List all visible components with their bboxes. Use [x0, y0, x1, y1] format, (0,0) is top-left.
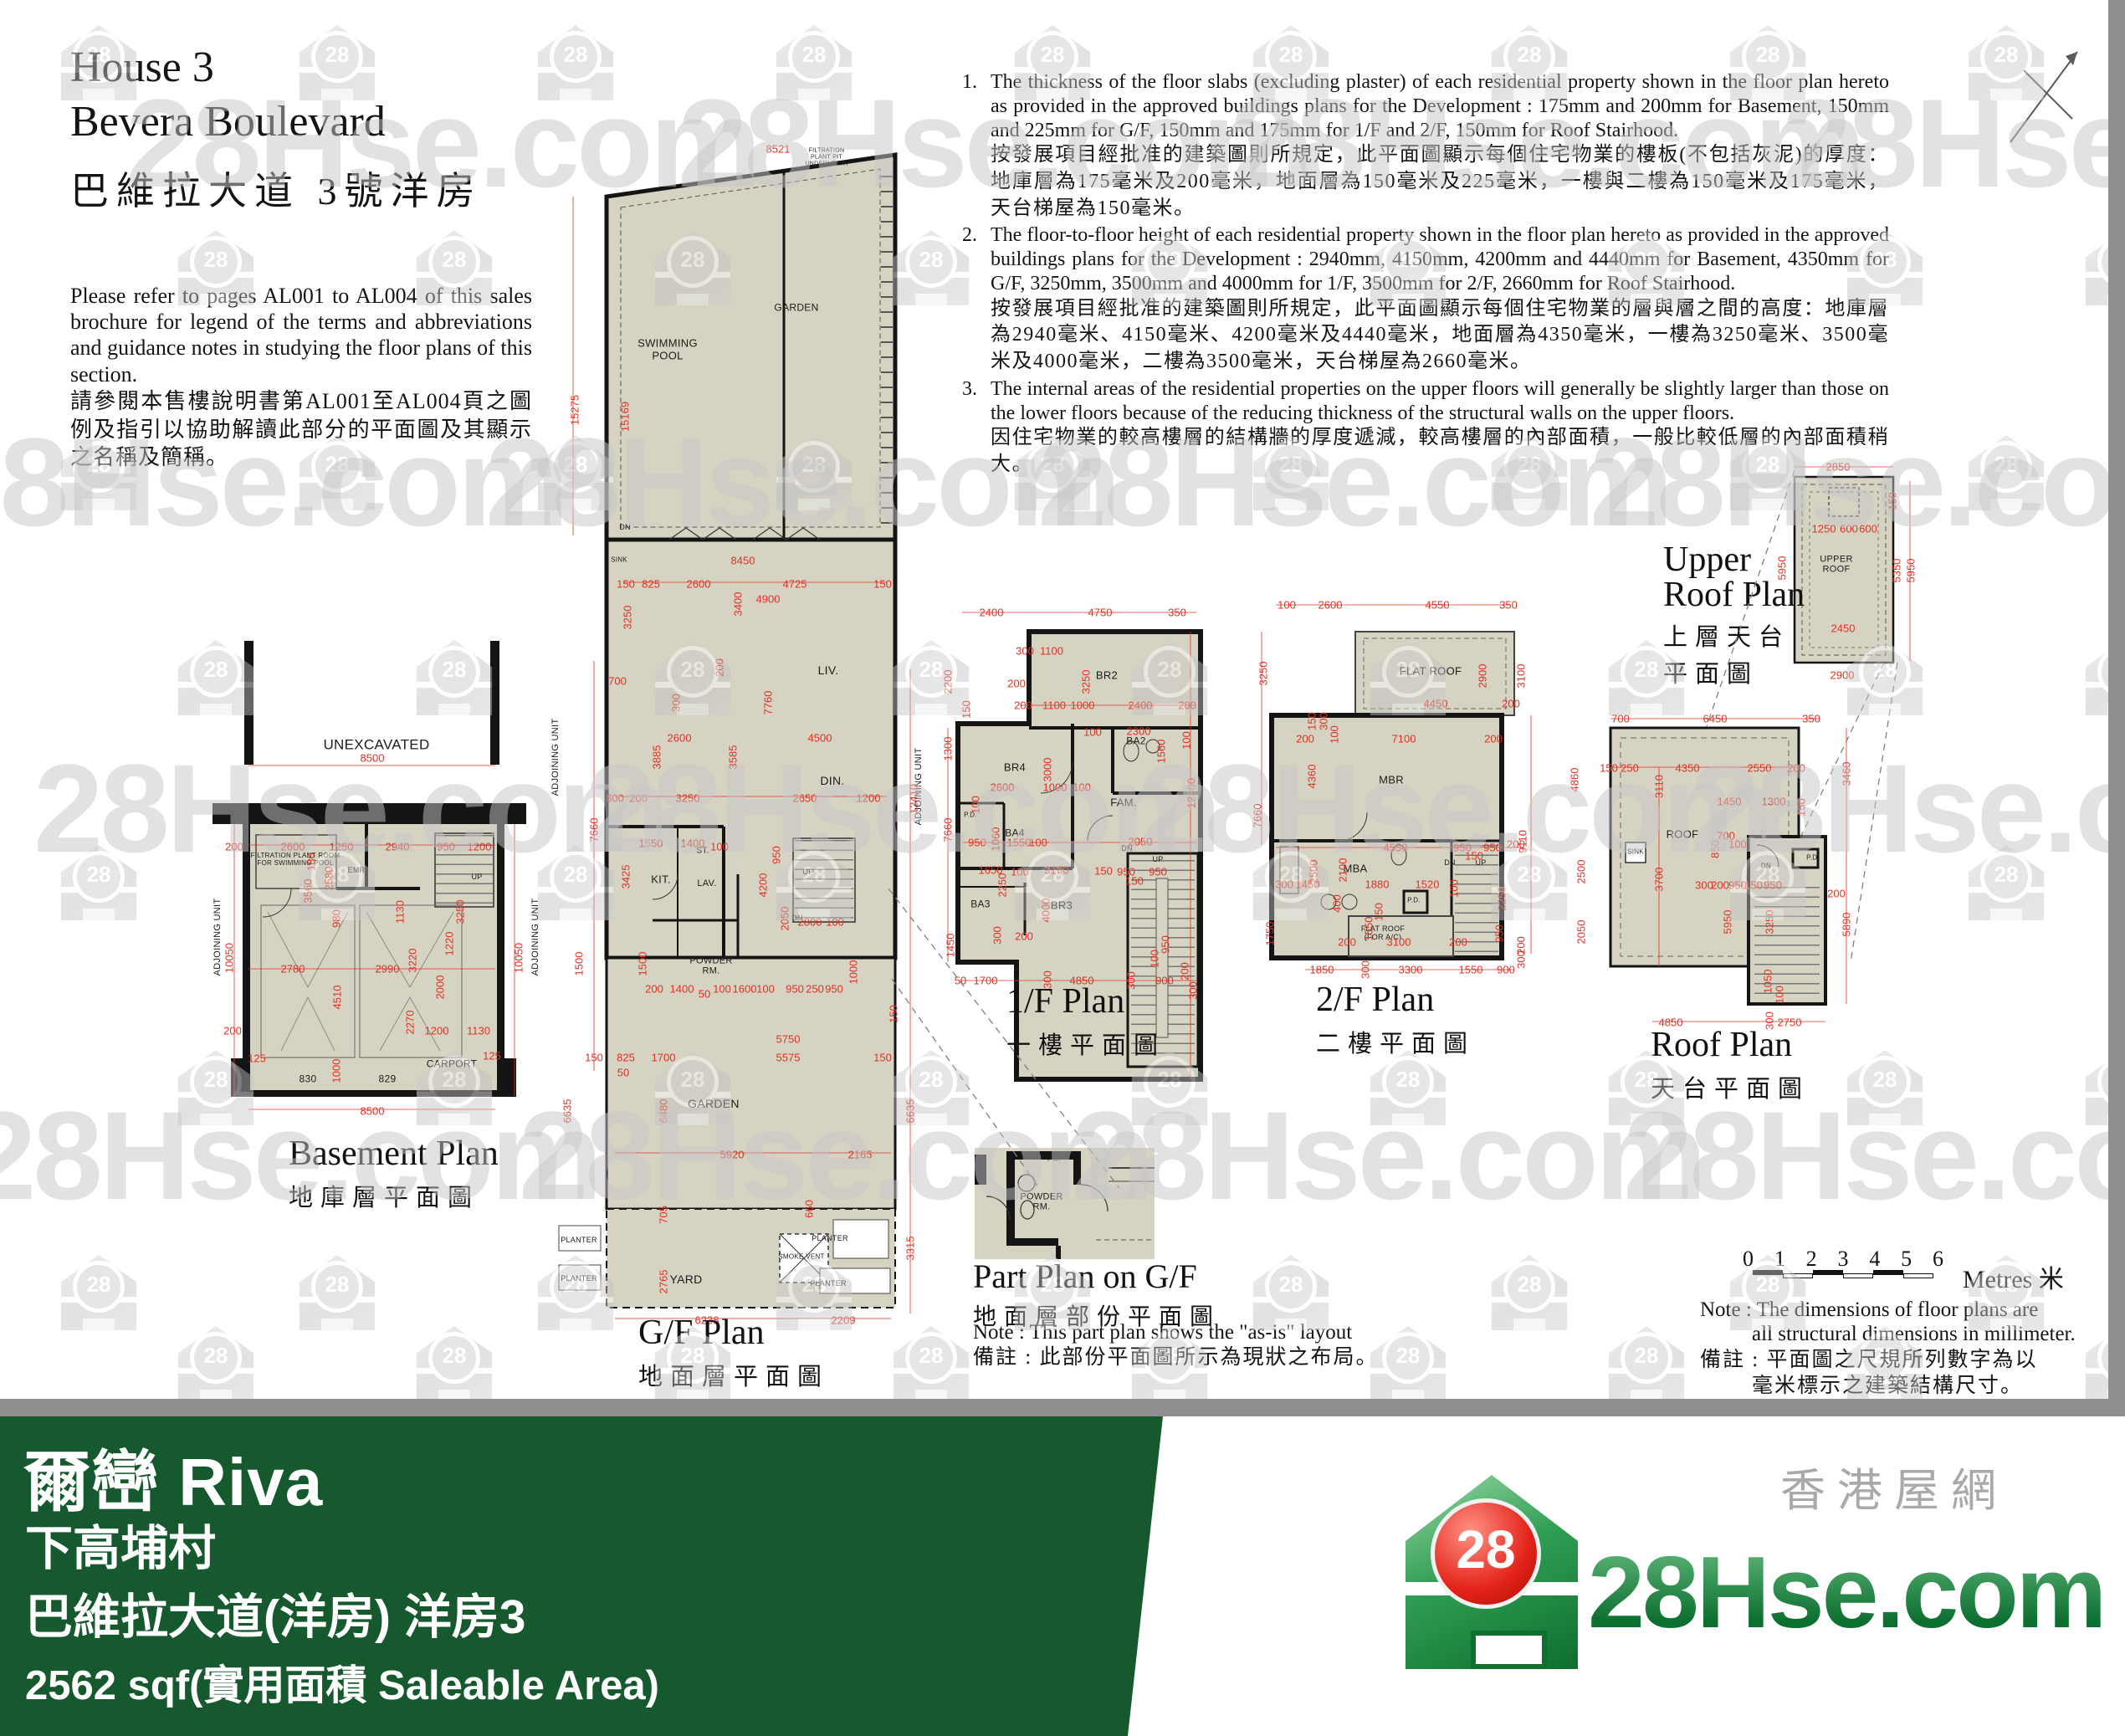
page-title-line2: Bevera Boulevard [70, 95, 386, 149]
watermark-badge: 28 [190, 1332, 242, 1384]
scalebar-ticks: 0123456 [1743, 1247, 1943, 1272]
scalebar-segment [1753, 1270, 1783, 1275]
property-banner: 爾巒 Riva 下高埔村 巴維拉大道(洋房) 洋房3 2562 sqf(實用面積… [0, 1416, 1163, 1736]
watermark-house-icon: 28 [774, 25, 854, 100]
dimension-note-zh2: 毫米標示之建築結構尺寸。 [1752, 1373, 2076, 1399]
watermark-house-body [297, 1255, 377, 1330]
watermark-house-icon: 28 [1845, 1050, 1925, 1125]
scalebar-tick: 2 [1806, 1247, 1817, 1272]
watermark-house-body [1966, 435, 2046, 510]
watermark-house-icon: 28 [176, 1326, 256, 1401]
upper-roof-plan-title: Upper Roof Plan 上層天台 平面圖 [1663, 542, 1805, 689]
roof-plan: ROOFSINKDNP.D. 7006450350150250435025502… [1602, 715, 1878, 1037]
intro-paragraph-zh: 請參閱本售樓說明書第AL001至AL004頁之圖例及指引以協助解讀此部分的平面圖… [70, 387, 532, 472]
watermark-house-body [59, 1255, 139, 1330]
watermark-badge: 28 [788, 31, 840, 83]
watermark-house-body [1966, 845, 2046, 920]
plan-title-zh-line2: 平面圖 [1663, 654, 1805, 689]
watermark-badge: 28 [1621, 1332, 1672, 1384]
second-floor-plan-title: 2/F Plan 二樓平面圖 [1316, 982, 1475, 1059]
part-plan-note-en: Note : This part plan shows the "as-is" … [973, 1320, 1352, 1345]
right-gray-strip [2108, 0, 2125, 1416]
watermark-badge: 28 [1980, 851, 2032, 903]
watermark-badge: 28 [550, 31, 602, 83]
watermark-house-icon: 28 [1966, 845, 2046, 920]
note-body: The thickness of the floor slabs (exclud… [991, 70, 1889, 222]
note-text-zh: 按發展項目經批准的建築圖則所規定，此平面圖顯示每個住宅物業的樓板(不包括灰泥)的… [991, 142, 1889, 222]
watermark-badge: 28 [428, 1332, 480, 1384]
watermark-badge: 28 [73, 851, 125, 903]
watermark-house-icon: 28 [414, 1326, 494, 1401]
note-body: The floor-to-floor height of each reside… [991, 223, 1889, 375]
note-number: 1. [962, 70, 991, 222]
note-item: 2. The floor-to-floor height of each res… [962, 223, 1889, 375]
property-address: 巴維拉大道(洋房) 洋房3 [25, 1579, 526, 1647]
plan-title-en: Roof Plan [1651, 1027, 1810, 1063]
watermark-house-body [59, 845, 139, 920]
note-text-en: The floor-to-floor height of each reside… [991, 223, 1889, 295]
watermark-house-icon: 28 [1251, 1255, 1331, 1330]
scalebar-segment [1903, 1273, 1933, 1278]
plan-title-zh: 一樓平面圖 [1006, 1026, 1165, 1061]
watermark-house-body [414, 1326, 494, 1401]
note-text-zh: 按發展項目經批准的建築圖則所規定，此平面圖顯示每個住宅物業的層與層之間的高度：地… [991, 296, 1889, 376]
watermark-house-icon: 28 [297, 1255, 377, 1330]
watermark-house-body [774, 25, 854, 100]
plan-title-zh: 二樓平面圖 [1316, 1024, 1475, 1059]
watermark-house-body [1251, 1255, 1331, 1330]
logo-text: 28Hse.com [1588, 1534, 2104, 1651]
dimension-note: Note : The dimensions of floor plans are… [1700, 1298, 2076, 1399]
property-district: 下高埔村 [25, 1510, 216, 1579]
note-number: 2. [962, 223, 991, 375]
roof-plan-drawing [1602, 715, 1878, 1037]
plan-title-en-line1: Upper [1663, 542, 1805, 577]
scalebar-segment [1873, 1270, 1903, 1275]
watermark-house-body [1368, 1326, 1448, 1401]
site-logo: 28 28Hse.com 香港屋網 [1389, 1435, 2125, 1736]
watermark-house-body [1845, 1050, 1925, 1125]
dimension-note-zh1: 備註 : 平面圖之尺規所列數字為以 [1700, 1347, 2076, 1373]
bottom-gray-strip [0, 1399, 2125, 1416]
part-plan-note-zh: 備註 : 此部份平面圖所示為現狀之布局。 [973, 1345, 1378, 1370]
scalebar-tick: 4 [1869, 1247, 1880, 1272]
first-floor-plan-title: 1/F Plan 一樓平面圖 [1006, 984, 1165, 1061]
scalebar-tick: 0 [1743, 1247, 1754, 1272]
watermark-house-body [1368, 1050, 1448, 1125]
watermark-house-icon: 28 [1368, 1050, 1448, 1125]
intro-paragraph-en: Please refer to pages AL001 to AL004 of … [70, 283, 532, 387]
part-plan-gf: P.D.POWDER RM. [975, 1148, 1155, 1259]
note-item: 3. The internal areas of the residential… [962, 377, 1889, 479]
gf-plan-drawing [544, 117, 929, 1339]
watermark-house-icon: 28 [59, 845, 139, 920]
scalebar-segment [1843, 1273, 1873, 1278]
note-text-en: The thickness of the floor slabs (exclud… [991, 70, 1889, 142]
scalebar-tick: 6 [1933, 1247, 1943, 1272]
intro-paragraph: Please refer to pages AL001 to AL004 of … [70, 283, 532, 472]
plan-title-en: G/F Plan [638, 1315, 829, 1350]
watermark-badge: 28 [1859, 1056, 1911, 1108]
scalebar-tick: 3 [1837, 1247, 1848, 1272]
basement-plan: UNEXCAVATEDFILTRATION PLANT ROOM FOR SWI… [209, 636, 544, 1150]
scalebar-segment [1813, 1270, 1843, 1275]
part-plan-drawing [975, 1148, 1155, 1259]
property-area: 2562 sqf(實用面積 Saleable Area) [25, 1652, 659, 1712]
second-floor-plan: FLAT ROOFMBRMBAP.D.FLAT ROOF (FOR A/C)DN… [1255, 594, 1590, 987]
watermark-house-icon: 28 [1489, 1255, 1569, 1330]
watermark-house-body [1489, 1255, 1569, 1330]
plan-title-zh-line1: 上層天台 [1663, 617, 1805, 653]
watermark-badge: 28 [1265, 1261, 1317, 1313]
plan-title-en: 1/F Plan [1006, 984, 1165, 1019]
watermark-badge: 28 [311, 1261, 363, 1313]
watermark-text: 28Hse.com [1071, 1083, 1703, 1228]
plan-title-zh: 天台平面圖 [1651, 1069, 1810, 1104]
watermark-house-icon: 28 [1368, 1326, 1448, 1401]
watermark-badge: 28 [1382, 1056, 1434, 1108]
logo-house-icon: 28 [1406, 1475, 1578, 1669]
watermark-badge: 28 [190, 236, 242, 288]
plan-title-en: 2/F Plan [1316, 982, 1475, 1017]
north-arrow-icon [1995, 35, 2092, 148]
watermark-badge: 28 [73, 1261, 125, 1313]
watermark-house-icon: 28 [535, 25, 616, 100]
dimension-note-en2: all structural dimensions in millimeter. [1752, 1323, 2076, 1347]
watermark-house-icon: 28 [1966, 435, 2046, 510]
scalebar-segment [1783, 1273, 1813, 1278]
plan-title-en-line2: Roof Plan [1663, 577, 1805, 612]
scalebar-tick: 5 [1901, 1247, 1912, 1272]
plan-title-en: Part Plan on G/F [973, 1260, 1221, 1293]
watermark-house-icon: 28 [59, 1255, 139, 1330]
note-body: The internal areas of the residential pr… [991, 377, 1889, 479]
scalebar-unit: Metres 米 [1963, 1258, 2064, 1295]
plan-title-zh: 地庫層平面圖 [289, 1178, 499, 1213]
basement-plan-drawing [209, 636, 544, 1150]
watermark-house-body [176, 1326, 256, 1401]
watermark-house-body [535, 25, 616, 100]
gf-plan-title: G/F Plan 地面層平面圖 [638, 1315, 829, 1392]
watermark-badge: 28 [1503, 1261, 1555, 1313]
note-item: 1. The thickness of the floor slabs (exc… [962, 70, 1889, 222]
note-text-zh: 因住宅物業的較高樓層的結構牆的厚度遞減，較高樓層的內部面積，一般比較低層的內部面… [991, 425, 1889, 478]
page-title-zh: 巴維拉大道 3號洋房 [70, 161, 483, 216]
roof-plan-title: Roof Plan 天台平面圖 [1651, 1027, 1810, 1104]
logo-tagline: 香港屋網 [1780, 1453, 2008, 1519]
logo-badge: 28 [1431, 1498, 1541, 1609]
watermark-badge: 28 [1382, 1332, 1434, 1384]
note-text-en: The internal areas of the residential pr… [991, 377, 1889, 426]
plan-title-en: Basement Plan [289, 1136, 499, 1171]
note-number: 3. [962, 377, 991, 479]
watermark-badge: 28 [428, 236, 480, 288]
scalebar-tick: 1 [1774, 1247, 1785, 1272]
basement-plan-title: Basement Plan 地庫層平面圖 [289, 1136, 499, 1213]
page-title-line1: House 3 [70, 40, 386, 95]
watermark-badge: 28 [905, 1332, 957, 1384]
page-title: House 3 Bevera Boulevard [70, 40, 386, 149]
gf-plan: FILTRATION PLANT PIT UNDERNEATHSWIMMING … [544, 117, 929, 1339]
watermark-text: 28Hse.com [1623, 1083, 2125, 1228]
plan-title-zh: 地面層平面圖 [638, 1357, 829, 1392]
watermark-badge: 28 [1980, 441, 2032, 493]
second-floor-plan-drawing [1255, 594, 1590, 987]
dimension-note-en1: Note : The dimensions of floor plans are [1700, 1298, 2076, 1323]
notes-list: 1. The thickness of the floor slabs (exc… [962, 70, 1889, 480]
watermark-house-icon: 28 [1606, 1326, 1687, 1401]
watermark-house-body [1606, 1326, 1687, 1401]
brochure-page: House 3 Bevera Boulevard 巴維拉大道 3號洋房 Plea… [0, 0, 2125, 1736]
scalebar [1753, 1270, 1933, 1278]
